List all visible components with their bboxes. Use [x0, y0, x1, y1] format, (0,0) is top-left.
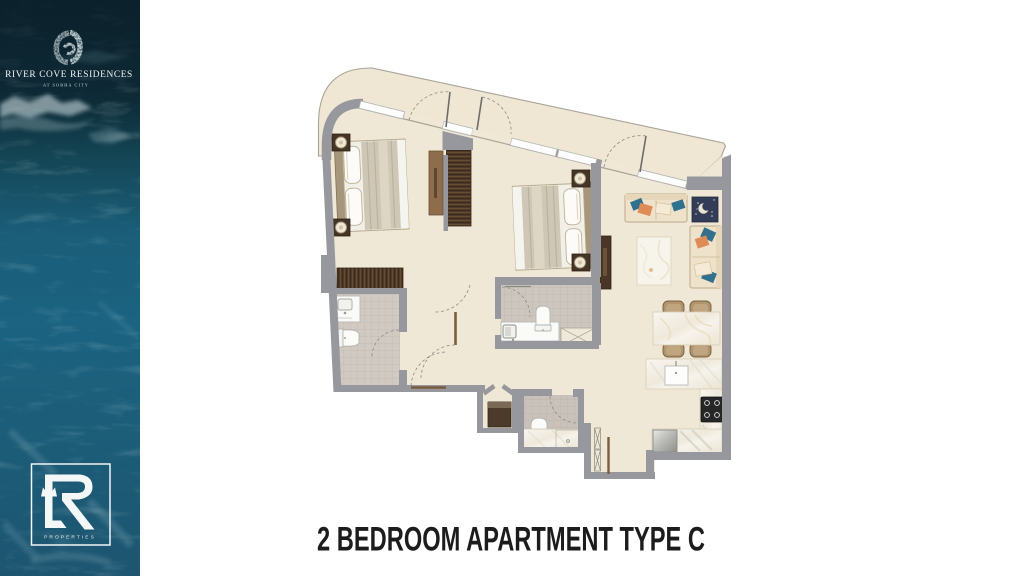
svg-text:RIVER COVE RESIDENCES: RIVER COVE RESIDENCES: [5, 70, 133, 80]
svg-text:AT SOBHA CITY: AT SOBHA CITY: [43, 83, 89, 88]
svg-text:PROPERTIES: PROPERTIES: [44, 535, 96, 541]
svg-text:2 BEDROOM APARTMENT TYPE C: 2 BEDROOM APARTMENT TYPE C: [317, 521, 705, 559]
